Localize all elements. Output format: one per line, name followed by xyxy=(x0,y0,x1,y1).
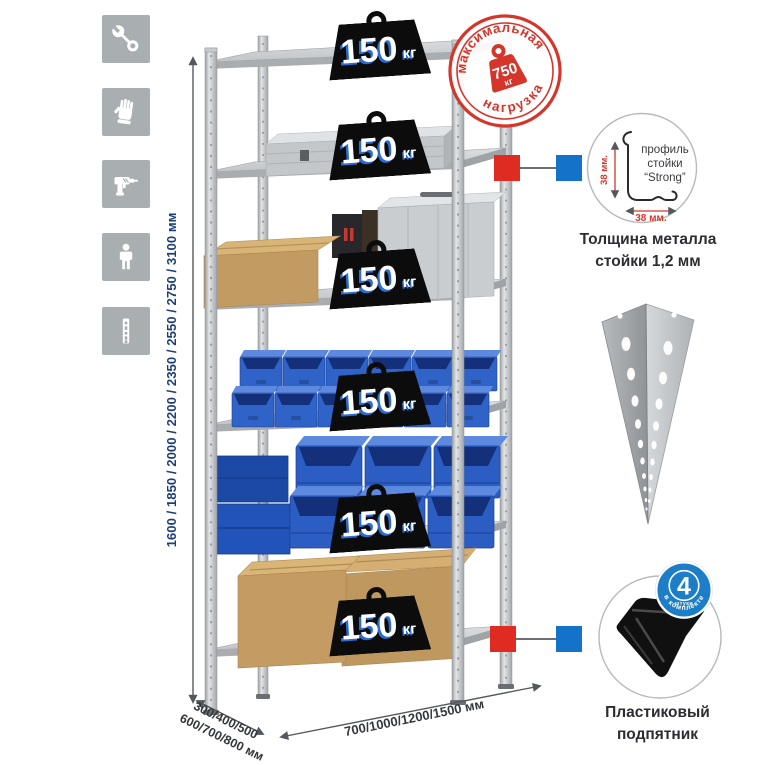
shelf-load-badge-2: 150кг xyxy=(325,108,431,181)
badge-count: 4 xyxy=(677,573,691,601)
shelf-load-badge-1: 150кг xyxy=(325,8,431,81)
max-load-stamp: максимальная нагрузка 750 кг xyxy=(438,4,572,138)
connector-red-square-top xyxy=(494,155,520,181)
upright-profile-image xyxy=(590,296,710,536)
profile-label-1: профиль xyxy=(641,144,689,156)
profile-label-3: “Strong” xyxy=(644,172,686,184)
profile-caption: Толщина металла стойки 1,2 мм xyxy=(573,229,723,272)
post-profile-detail: 38 мм. 38 мм. профиль стойки “Strong” xyxy=(584,110,700,226)
shelf-load-badge-4: 150кг xyxy=(325,359,431,432)
depth-dimension: 300/400/500 600/700/800 мм xyxy=(178,699,266,764)
profile-dim-horizontal: 38 мм. xyxy=(635,213,667,224)
width-dimension: 700/1000/1200/1500 мм xyxy=(281,686,540,739)
profile-label-2: стойки xyxy=(647,158,682,170)
connector-blue-square-bottom xyxy=(556,626,582,652)
connector-red-square-bottom xyxy=(490,626,516,652)
profile-dim-vertical: 38 мм. xyxy=(599,155,610,185)
height-dimension-label: 1600 / 1850 / 2000 / 2200 / 2350 / 2550 … xyxy=(164,213,179,548)
shelf-load-badge-6: 150кг xyxy=(325,584,431,657)
foot-caption: Пластиковый подпятник xyxy=(580,702,735,745)
infographic-stage: 1600 / 1850 / 2000 / 2200 / 2350 / 2550 … xyxy=(0,0,765,765)
connector-blue-square-top xyxy=(556,155,582,181)
quantity-badge: 4 штуки в комплекте xyxy=(654,560,714,620)
shelf-load-badge-3: 150кг xyxy=(325,237,431,310)
width-dimension-label: 700/1000/1200/1500 мм xyxy=(343,696,485,739)
shelf-load-badge-5: 150кг xyxy=(325,481,431,554)
height-dimension: 1600 / 1850 / 2000 / 2200 / 2350 / 2550 … xyxy=(164,58,193,702)
